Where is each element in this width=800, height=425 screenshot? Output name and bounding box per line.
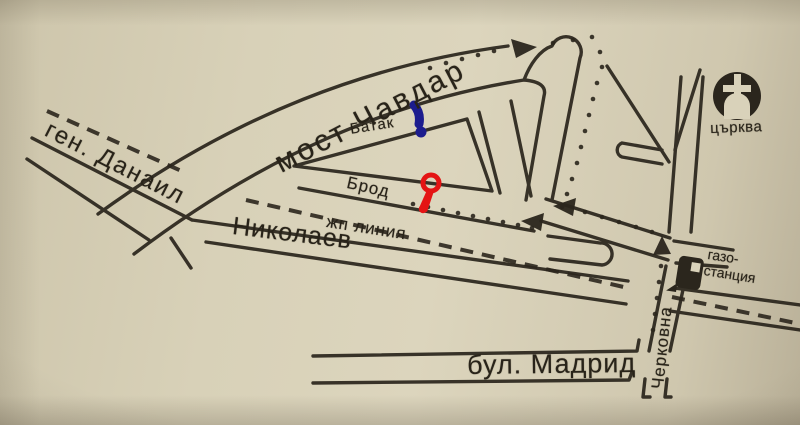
round-stub-street	[617, 143, 662, 164]
church-icon	[713, 72, 761, 120]
dashed-tram-line	[47, 111, 800, 324]
poi-label-church: църква	[710, 119, 763, 136]
map-drawing	[0, 0, 800, 425]
dotted-route-ramp	[560, 81, 600, 210]
map-sign-photo: мост Чавдар ген. Данаил Батак Брод жп ли…	[0, 0, 800, 425]
block-edge-2	[511, 101, 531, 196]
arrow-east-bridge-icon	[511, 39, 537, 58]
junction-spur	[171, 238, 191, 268]
street-label-bul-madrid: бул. Мадрид	[467, 350, 636, 379]
